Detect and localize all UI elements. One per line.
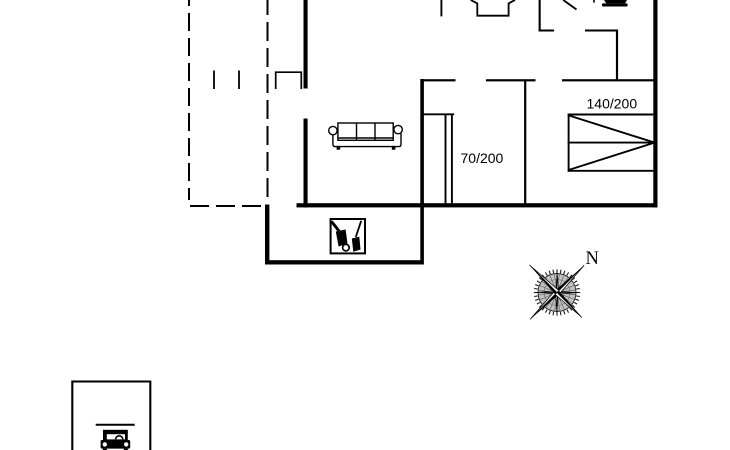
svg-text:70/200: 70/200 bbox=[461, 150, 504, 166]
svg-text:140/200: 140/200 bbox=[587, 96, 638, 112]
svg-text:N: N bbox=[586, 249, 599, 269]
